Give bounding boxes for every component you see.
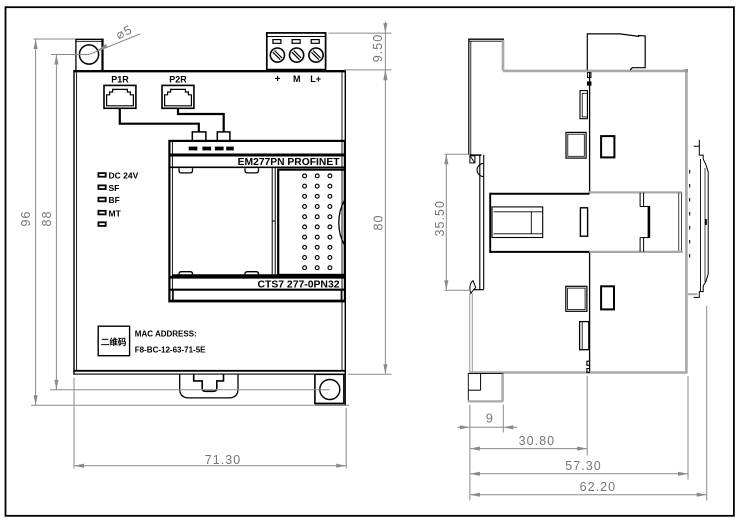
svg-text:9.50: 9.50	[371, 34, 385, 63]
svg-text:88: 88	[40, 210, 54, 226]
svg-text:71.30: 71.30	[205, 453, 242, 467]
svg-text:BF: BF	[109, 195, 120, 205]
svg-text:F8-BC-12-63-71-5E: F8-BC-12-63-71-5E	[135, 345, 206, 354]
svg-text:57.30: 57.30	[565, 459, 602, 473]
svg-text:⌀5: ⌀5	[114, 22, 135, 42]
svg-text:二维码: 二维码	[101, 337, 127, 347]
svg-text:DC 24V: DC 24V	[109, 171, 139, 181]
svg-text:80: 80	[371, 214, 385, 230]
svg-text:62.20: 62.20	[580, 480, 617, 494]
svg-text:9: 9	[486, 411, 494, 425]
svg-text:MT: MT	[109, 208, 122, 218]
svg-text:30.80: 30.80	[519, 434, 556, 448]
svg-text:P1R: P1R	[111, 74, 129, 84]
svg-text:96: 96	[19, 210, 33, 226]
svg-text:+: +	[275, 74, 281, 85]
svg-text:MAC ADDRESS:: MAC ADDRESS:	[135, 329, 197, 338]
svg-text:EM277PN PROFINET: EM277PN PROFINET	[238, 157, 341, 168]
svg-text:35.50: 35.50	[433, 200, 447, 237]
svg-text:P2R: P2R	[169, 74, 187, 84]
svg-text:L+: L+	[310, 74, 321, 84]
svg-text:M: M	[293, 74, 301, 84]
svg-text:SF: SF	[109, 183, 120, 193]
